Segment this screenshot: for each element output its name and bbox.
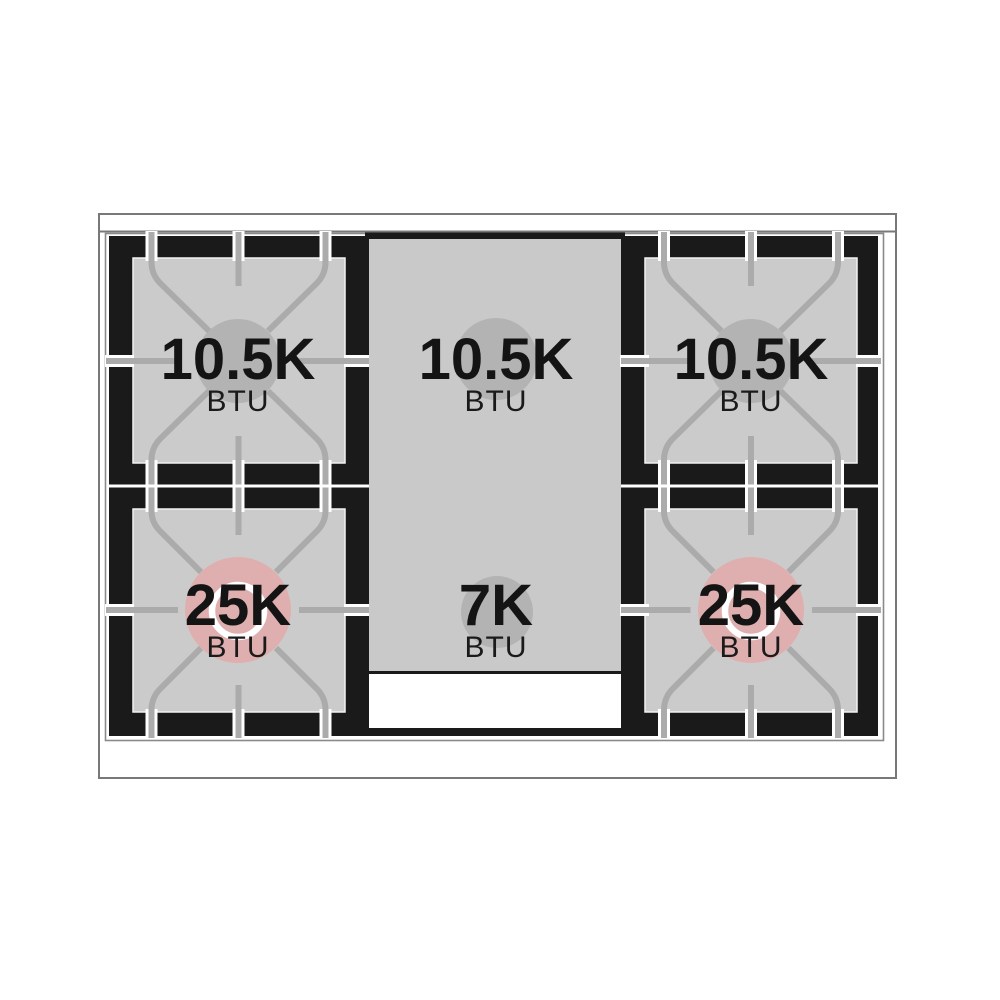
btu-unit-top-left: BTU bbox=[207, 385, 270, 418]
btu-unit-top-right: BTU bbox=[720, 385, 783, 418]
btu-value-top-right: 10.5K bbox=[674, 327, 829, 392]
btu-unit-bottom-right: BTU bbox=[720, 631, 783, 664]
griddle-lower-panel bbox=[369, 674, 621, 728]
griddle-top-border bbox=[365, 233, 625, 239]
btu-value-bottom-center: 7K bbox=[459, 573, 533, 638]
btu-value-top-center: 10.5K bbox=[419, 327, 574, 392]
btu-unit-top-center: BTU bbox=[465, 385, 528, 418]
btu-value-top-left: 10.5K bbox=[161, 327, 316, 392]
cooktop-diagram: 10.5K BTU 10.5K BTU 10.5K BTU 25K BTU 7K… bbox=[0, 0, 1000, 1000]
btu-value-bottom-right: 25K bbox=[698, 573, 805, 638]
btu-unit-bottom-center: BTU bbox=[465, 631, 528, 664]
cooktop-svg: 10.5K BTU 10.5K BTU 10.5K BTU 25K BTU 7K… bbox=[0, 0, 1000, 1000]
btu-unit-bottom-left: BTU bbox=[207, 631, 270, 664]
btu-value-bottom-left: 25K bbox=[185, 573, 292, 638]
